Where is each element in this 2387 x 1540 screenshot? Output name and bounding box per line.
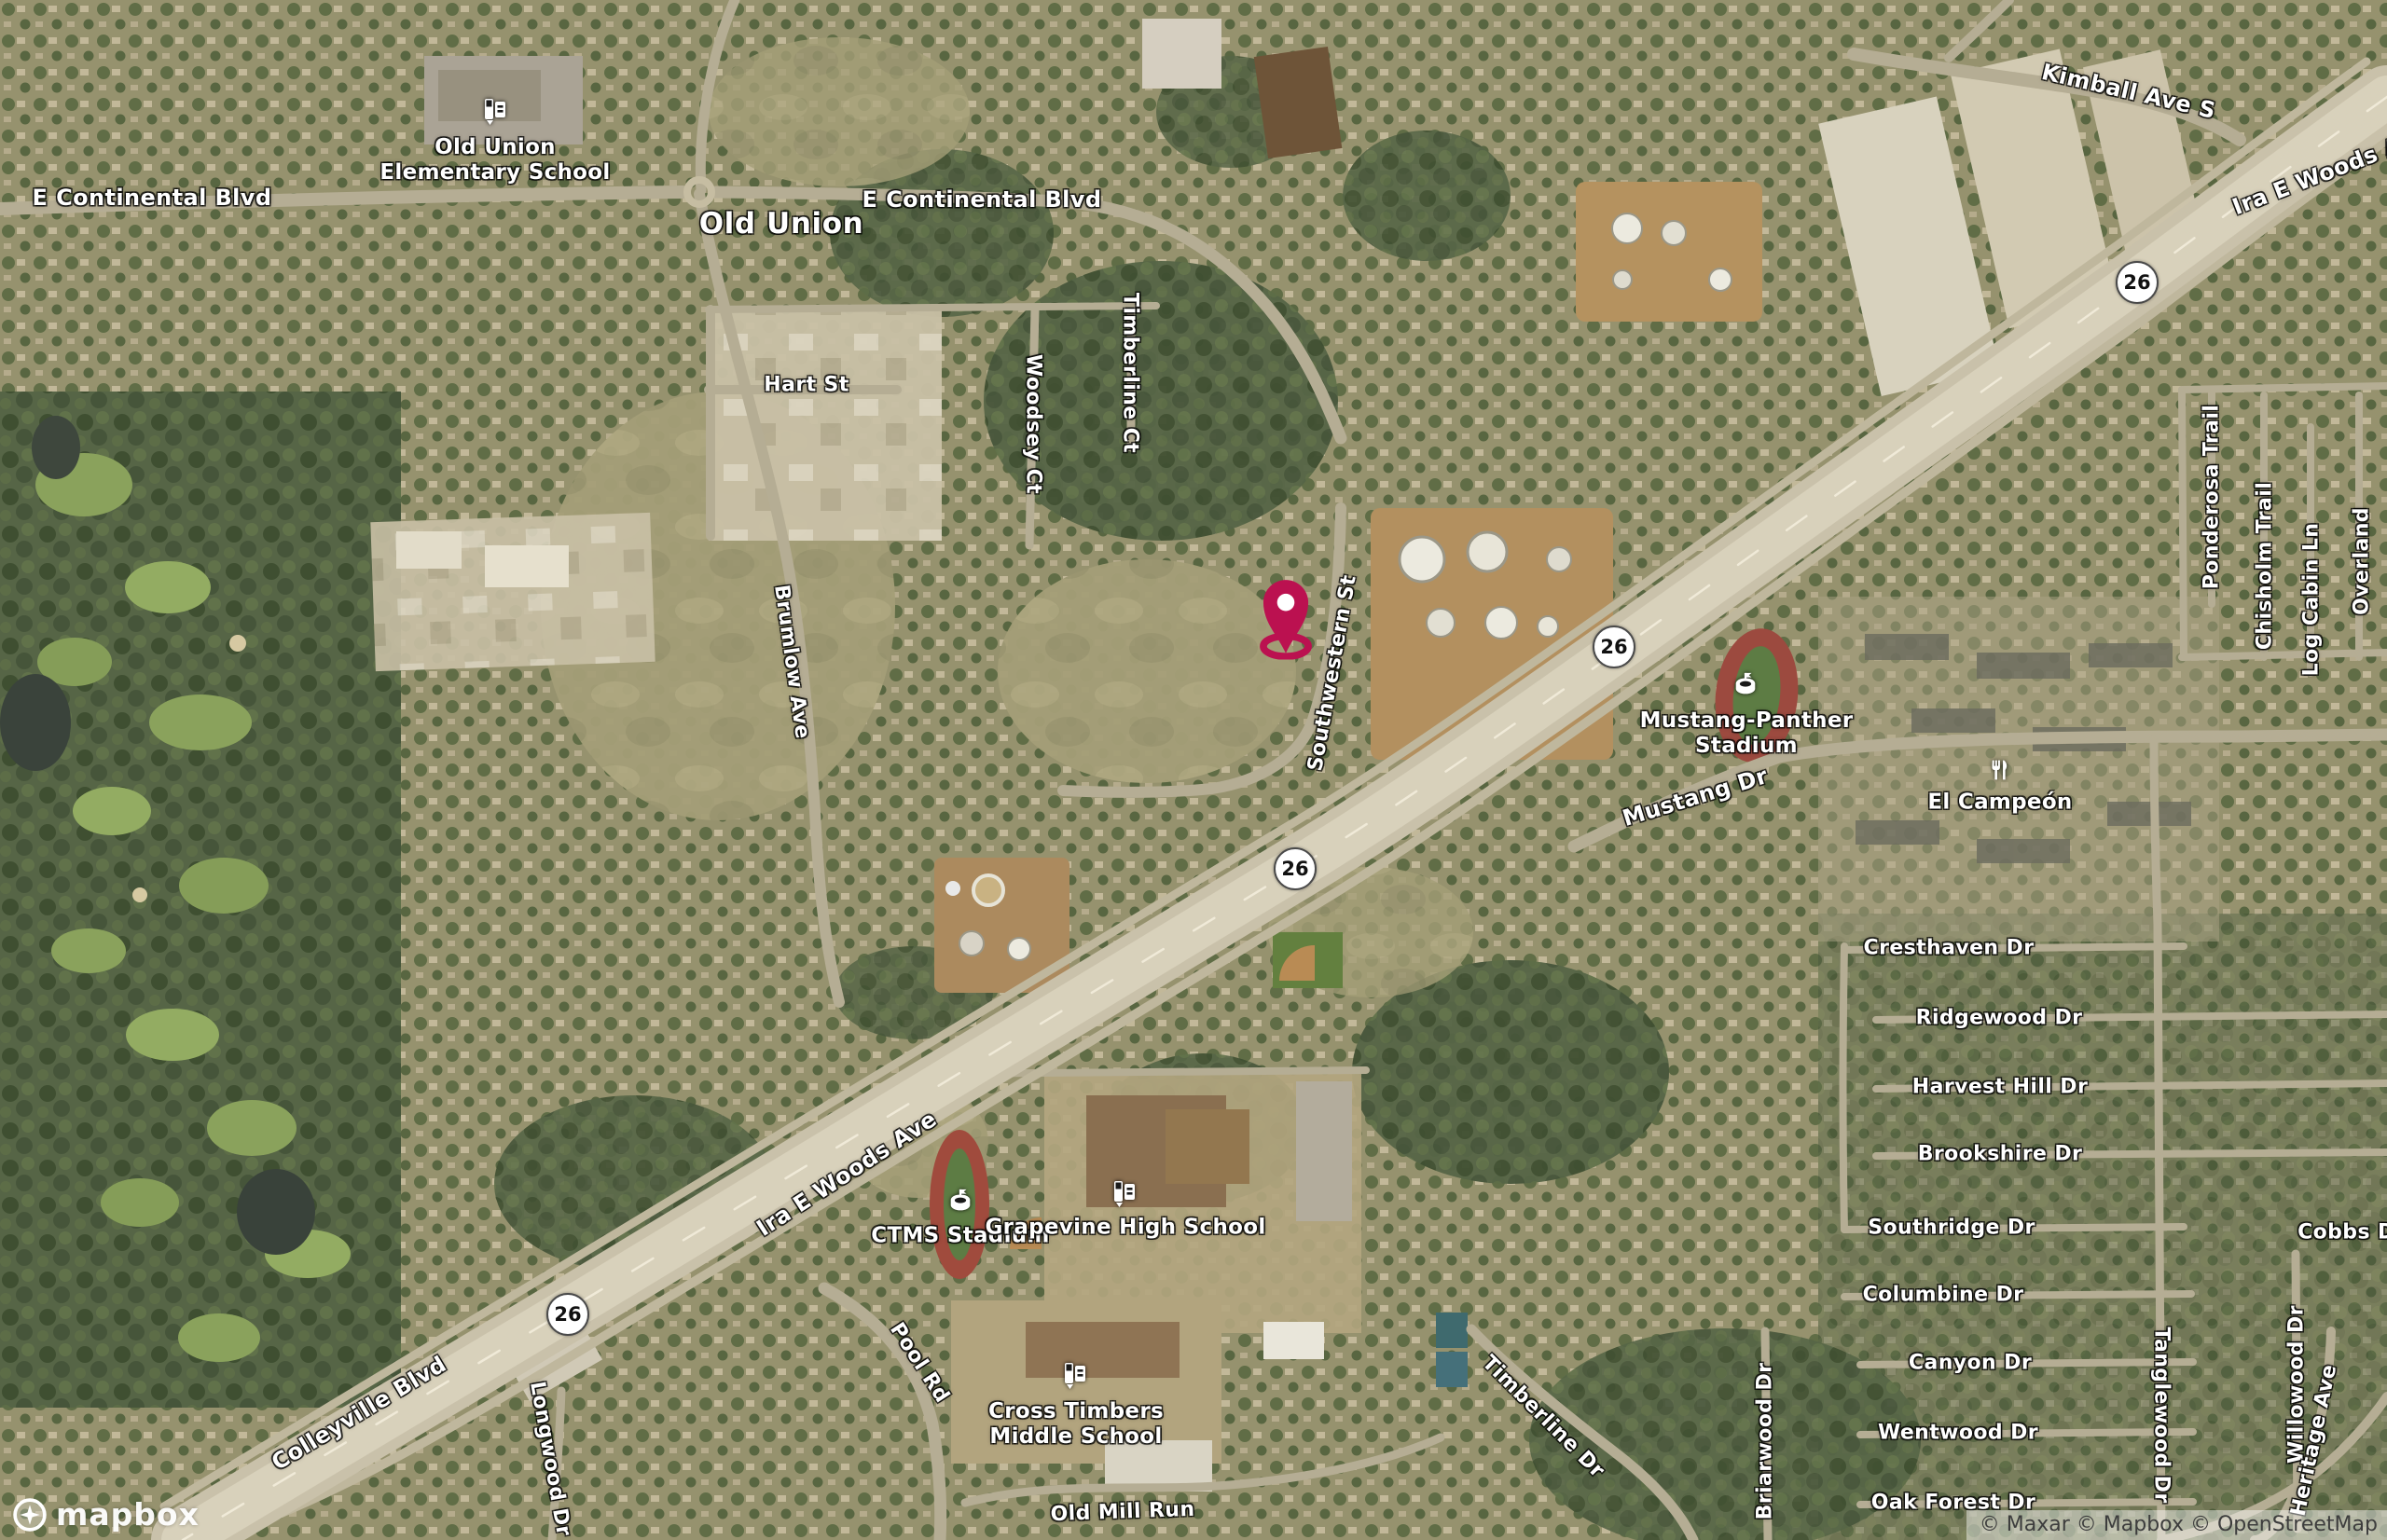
map-canvas[interactable]: E Continental BlvdE Continental BlvdKimb… xyxy=(0,0,2387,1540)
map-attribution[interactable]: © Maxar © Mapbox © OpenStreetMap xyxy=(1966,1510,2387,1540)
mapbox-logo-icon xyxy=(13,1498,47,1532)
mapbox-logo[interactable]: mapbox xyxy=(13,1496,200,1533)
mapbox-logo-text: mapbox xyxy=(56,1496,200,1533)
satellite-imagery xyxy=(0,0,2387,1540)
